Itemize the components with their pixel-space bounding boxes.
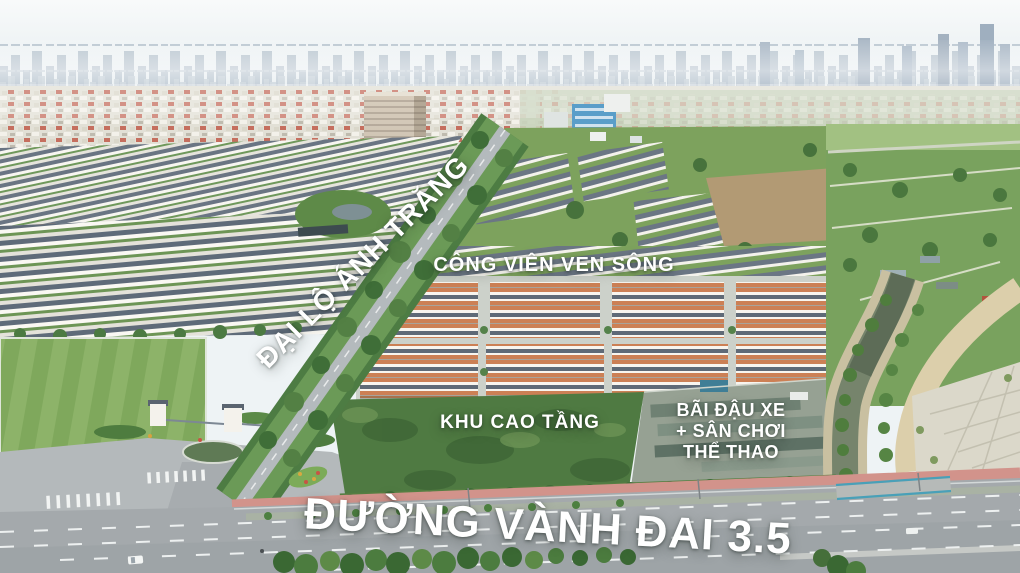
parking-label-line-1: BÃI ĐẬU XE — [631, 400, 831, 421]
white-car-2 — [906, 528, 918, 534]
motorbike — [260, 549, 264, 553]
parking-label-line-2: + SÂN CHƠI — [631, 421, 831, 442]
aerial-photo: ĐẠI LỘ ÁNH TRĂNG CÔNG VIÊN VEN SÔNG KHU … — [0, 0, 1020, 573]
high-rise-zone-label: KHU CAO TẦNG — [420, 412, 620, 434]
riverside-park-label: CÔNG VIÊN VEN SÔNG — [404, 254, 704, 277]
east-fields — [826, 124, 1020, 502]
white-car — [128, 555, 144, 564]
parking-label-line-3: THỂ THAO — [631, 442, 831, 463]
aerial-scene — [0, 0, 1020, 573]
parking-sports-label: BÃI ĐẬU XE + SÂN CHƠI THỂ THAO — [631, 400, 831, 463]
park-pond — [332, 204, 372, 220]
gate-fountain-pond — [183, 441, 243, 463]
